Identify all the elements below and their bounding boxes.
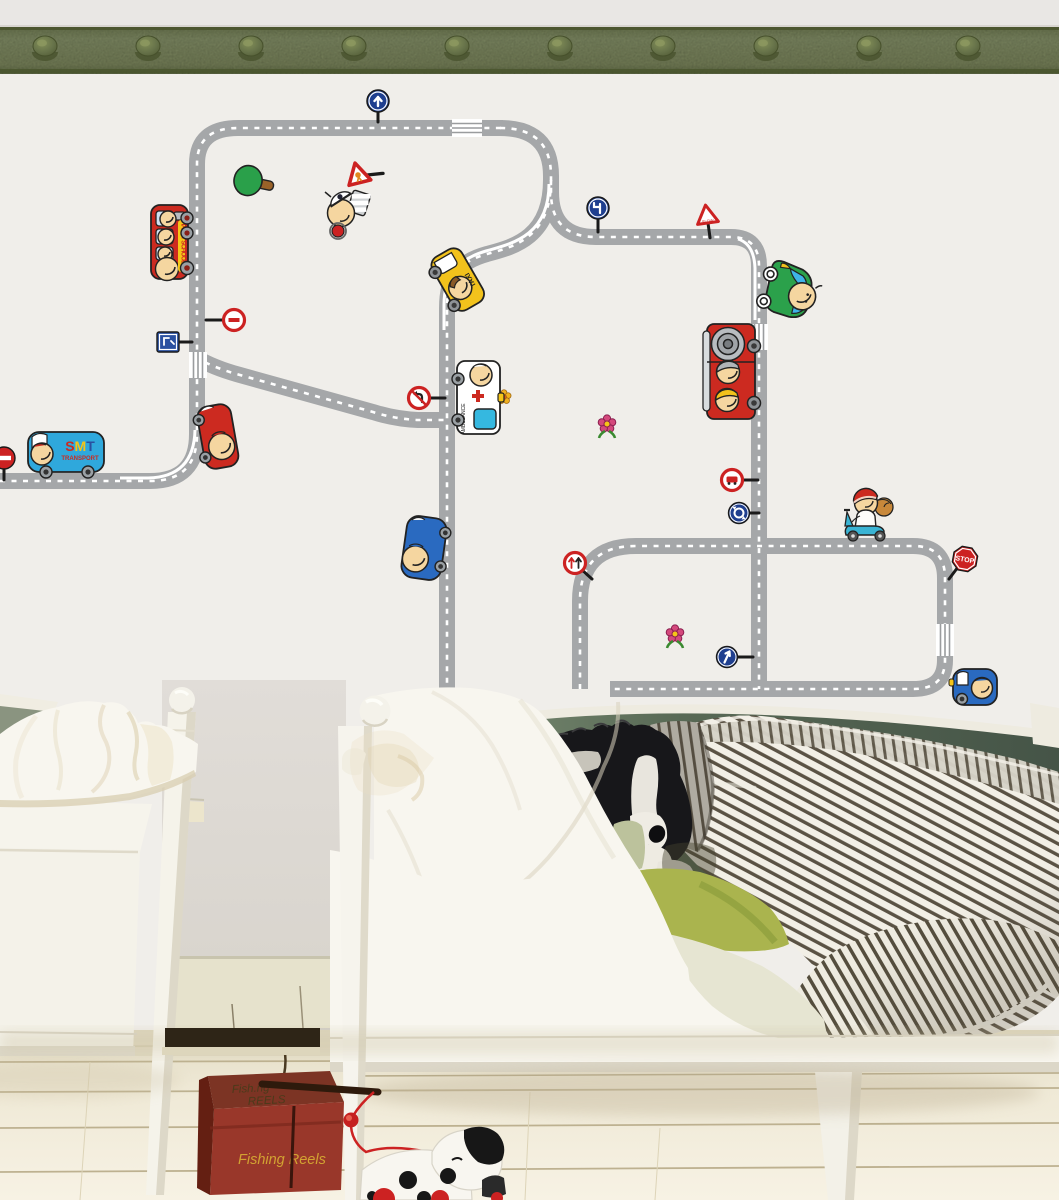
svg-text:REELS: REELS — [248, 1094, 287, 1108]
svg-text:Fishing Reels: Fishing Reels — [238, 1152, 326, 1168]
svg-text:SMT: SMT — [65, 438, 95, 454]
svg-text:TRANSPORT: TRANSPORT — [61, 456, 99, 462]
